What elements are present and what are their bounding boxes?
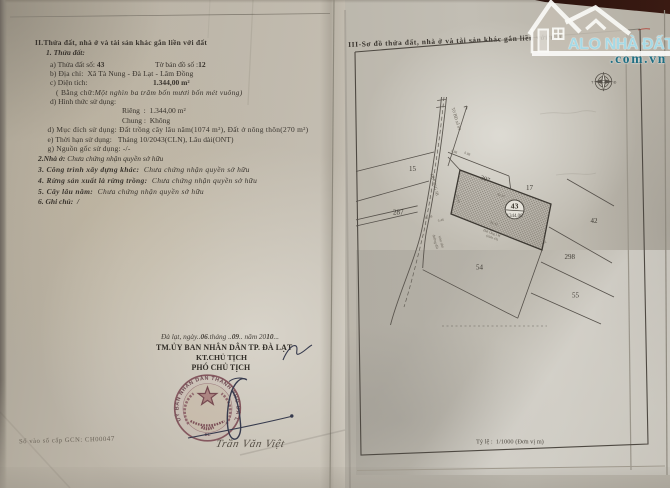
svg-text:55: 55 <box>572 292 580 300</box>
svg-text:298: 298 <box>565 253 576 261</box>
svg-text:Tờ BĐ số 09: Tờ BĐ số 09 <box>451 107 463 132</box>
svg-text:Tỷ lệ : 1/1000 (Đơn vị m): Tỷ lệ : 1/1000 (Đơn vị m) <box>476 439 544 446</box>
svg-text:3.46: 3.46 <box>437 218 444 223</box>
svg-text:17: 17 <box>526 184 534 192</box>
svg-text:T: T <box>591 80 594 85</box>
svg-text:11.08: 11.08 <box>424 214 433 220</box>
svg-text:ĐƯỜNG 58: ĐƯỜNG 58 <box>430 173 440 197</box>
svg-text:287: 287 <box>393 209 404 217</box>
svg-text:Đ: Đ <box>614 80 617 85</box>
svg-text:42: 42 <box>591 217 599 225</box>
svg-text:43: 43 <box>511 201 519 210</box>
svg-text:5.98: 5.98 <box>464 151 471 157</box>
svg-text:1344,00: 1344,00 <box>507 214 523 219</box>
svg-text:54: 54 <box>476 264 484 272</box>
svg-text:15: 15 <box>409 165 417 173</box>
